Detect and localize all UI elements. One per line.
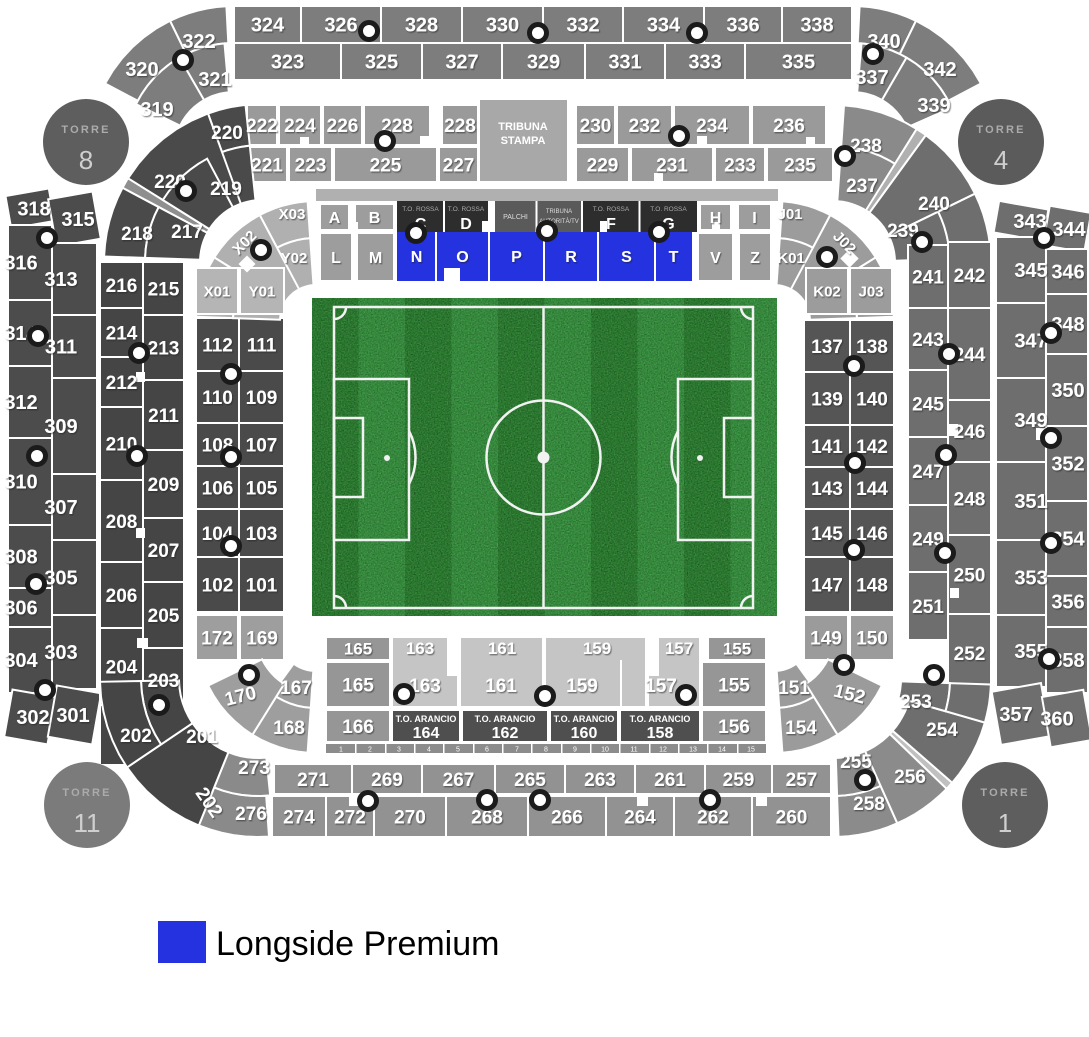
svg-text:265: 265 bbox=[514, 770, 546, 791]
svg-text:248: 248 bbox=[954, 489, 986, 510]
svg-text:155: 155 bbox=[718, 675, 750, 696]
svg-text:231: 231 bbox=[656, 155, 688, 176]
svg-text:162: 162 bbox=[492, 725, 519, 742]
svg-text:211: 211 bbox=[148, 406, 179, 427]
svg-text:7: 7 bbox=[515, 747, 519, 754]
svg-text:T: T bbox=[669, 249, 679, 266]
svg-text:315: 315 bbox=[61, 209, 94, 231]
svg-text:137: 137 bbox=[811, 337, 843, 358]
svg-text:259: 259 bbox=[723, 770, 755, 791]
svg-text:344: 344 bbox=[1052, 219, 1086, 241]
svg-text:256: 256 bbox=[894, 767, 926, 788]
svg-text:156: 156 bbox=[718, 717, 750, 738]
svg-text:TORRE: TORRE bbox=[980, 787, 1029, 799]
svg-text:360: 360 bbox=[1040, 709, 1073, 731]
svg-text:237: 237 bbox=[846, 176, 878, 197]
svg-text:Y01: Y01 bbox=[249, 283, 276, 300]
svg-text:318: 318 bbox=[17, 199, 50, 221]
svg-text:159: 159 bbox=[566, 676, 598, 697]
svg-text:T.O. ARANCIO: T.O. ARANCIO bbox=[396, 714, 457, 724]
svg-text:334: 334 bbox=[647, 15, 681, 37]
svg-text:102: 102 bbox=[202, 575, 234, 596]
svg-text:206: 206 bbox=[106, 586, 138, 607]
svg-text:338: 338 bbox=[800, 15, 833, 37]
svg-text:234: 234 bbox=[696, 116, 728, 137]
svg-text:T.O. ROSSA: T.O. ROSSA bbox=[402, 206, 439, 213]
svg-text:167: 167 bbox=[280, 678, 312, 699]
svg-text:228: 228 bbox=[444, 116, 476, 137]
svg-text:267: 267 bbox=[443, 770, 475, 791]
svg-text:260: 260 bbox=[776, 807, 808, 828]
svg-text:112: 112 bbox=[202, 335, 233, 356]
svg-text:263: 263 bbox=[584, 770, 616, 791]
svg-text:272: 272 bbox=[334, 807, 366, 828]
svg-text:204: 204 bbox=[106, 657, 138, 678]
svg-text:169: 169 bbox=[246, 628, 278, 649]
svg-text:332: 332 bbox=[566, 15, 599, 37]
svg-text:150: 150 bbox=[856, 628, 888, 649]
svg-text:205: 205 bbox=[148, 606, 180, 627]
svg-text:T.O. ARANCIO: T.O. ARANCIO bbox=[630, 714, 691, 724]
svg-text:K02: K02 bbox=[813, 283, 841, 300]
svg-text:219: 219 bbox=[210, 179, 242, 200]
svg-text:105: 105 bbox=[246, 478, 278, 499]
svg-text:319: 319 bbox=[140, 99, 173, 121]
svg-text:15: 15 bbox=[747, 747, 755, 754]
svg-text:1: 1 bbox=[339, 747, 343, 754]
svg-text:352: 352 bbox=[1051, 454, 1084, 476]
svg-text:145: 145 bbox=[811, 524, 843, 545]
svg-text:4: 4 bbox=[427, 747, 431, 754]
svg-text:I: I bbox=[752, 210, 756, 227]
svg-text:X01: X01 bbox=[204, 283, 231, 300]
svg-text:J03: J03 bbox=[858, 283, 883, 300]
svg-text:M: M bbox=[369, 250, 382, 267]
svg-text:335: 335 bbox=[782, 52, 815, 74]
svg-text:1: 1 bbox=[998, 808, 1012, 838]
svg-text:166: 166 bbox=[342, 717, 374, 738]
svg-text:T.O. ROSSA: T.O. ROSSA bbox=[593, 206, 630, 213]
svg-text:T.O. ROSSA: T.O. ROSSA bbox=[448, 206, 485, 213]
svg-text:221: 221 bbox=[251, 155, 283, 176]
svg-text:251: 251 bbox=[912, 597, 944, 618]
svg-text:101: 101 bbox=[246, 575, 278, 596]
svg-text:P: P bbox=[511, 249, 522, 266]
svg-text:165: 165 bbox=[344, 640, 372, 659]
svg-text:S: S bbox=[621, 249, 632, 266]
svg-text:TRIBUNA: TRIBUNA bbox=[546, 209, 572, 215]
svg-text:161: 161 bbox=[488, 639, 516, 658]
svg-text:313: 313 bbox=[44, 269, 77, 291]
svg-text:230: 230 bbox=[580, 116, 612, 137]
svg-text:276: 276 bbox=[235, 804, 267, 825]
svg-text:353: 353 bbox=[1014, 568, 1047, 590]
svg-text:333: 333 bbox=[688, 52, 721, 74]
svg-text:107: 107 bbox=[246, 435, 278, 456]
svg-text:6: 6 bbox=[485, 747, 489, 754]
svg-text:324: 324 bbox=[251, 15, 285, 37]
svg-text:154: 154 bbox=[785, 718, 817, 739]
svg-text:254: 254 bbox=[926, 720, 958, 741]
svg-text:203: 203 bbox=[148, 671, 180, 692]
svg-text:327: 327 bbox=[445, 52, 478, 74]
svg-text:148: 148 bbox=[856, 575, 888, 596]
svg-text:209: 209 bbox=[148, 475, 180, 496]
svg-text:K01: K01 bbox=[777, 250, 805, 267]
svg-text:T.O. ARANCIO: T.O. ARANCIO bbox=[554, 714, 615, 724]
svg-text:337: 337 bbox=[855, 67, 888, 89]
svg-text:303: 303 bbox=[44, 642, 77, 664]
svg-text:216: 216 bbox=[106, 276, 138, 297]
svg-text:342: 342 bbox=[923, 59, 956, 81]
svg-text:10: 10 bbox=[601, 747, 609, 754]
svg-text:201: 201 bbox=[186, 727, 218, 748]
svg-text:250: 250 bbox=[954, 565, 986, 586]
svg-text:316: 316 bbox=[4, 253, 37, 275]
svg-text:144: 144 bbox=[856, 479, 888, 500]
svg-text:322: 322 bbox=[182, 31, 215, 53]
svg-text:273: 273 bbox=[238, 758, 270, 779]
svg-text:111: 111 bbox=[247, 335, 277, 356]
svg-text:2: 2 bbox=[368, 747, 372, 754]
svg-text:270: 270 bbox=[394, 807, 426, 828]
svg-text:149: 149 bbox=[810, 628, 842, 649]
svg-text:245: 245 bbox=[912, 394, 944, 415]
svg-text:261: 261 bbox=[654, 770, 686, 791]
svg-text:110: 110 bbox=[202, 388, 233, 409]
svg-text:H: H bbox=[710, 210, 722, 227]
svg-text:223: 223 bbox=[295, 155, 327, 176]
svg-text:O: O bbox=[456, 249, 468, 266]
svg-text:222: 222 bbox=[246, 116, 278, 137]
svg-text:235: 235 bbox=[784, 155, 816, 176]
svg-text:14: 14 bbox=[718, 747, 726, 754]
svg-text:301: 301 bbox=[56, 705, 89, 727]
svg-text:252: 252 bbox=[954, 644, 986, 665]
svg-text:320: 320 bbox=[125, 59, 158, 81]
svg-text:243: 243 bbox=[912, 330, 944, 351]
svg-text:356: 356 bbox=[1051, 592, 1084, 614]
svg-text:305: 305 bbox=[44, 568, 77, 590]
svg-text:8: 8 bbox=[544, 747, 548, 754]
svg-text:274: 274 bbox=[283, 807, 315, 828]
svg-text:A: A bbox=[329, 210, 341, 227]
svg-text:155: 155 bbox=[723, 640, 751, 659]
svg-text:227: 227 bbox=[443, 155, 475, 176]
svg-text:233: 233 bbox=[724, 155, 756, 176]
svg-text:161: 161 bbox=[485, 676, 517, 697]
svg-text:F: F bbox=[606, 216, 616, 233]
svg-text:345: 345 bbox=[1014, 260, 1047, 282]
svg-text:165: 165 bbox=[342, 675, 374, 696]
svg-text:220: 220 bbox=[211, 123, 243, 144]
svg-text:307: 307 bbox=[44, 497, 77, 519]
svg-text:V: V bbox=[710, 250, 721, 267]
svg-text:330: 330 bbox=[486, 15, 519, 37]
svg-text:168: 168 bbox=[273, 718, 305, 739]
svg-text:246: 246 bbox=[954, 422, 986, 443]
svg-text:PALCHI: PALCHI bbox=[503, 214, 528, 221]
svg-text:103: 103 bbox=[246, 524, 278, 545]
svg-text:269: 269 bbox=[371, 770, 403, 791]
svg-text:253: 253 bbox=[900, 692, 932, 713]
svg-text:349: 349 bbox=[1014, 410, 1047, 432]
svg-text:357: 357 bbox=[999, 704, 1032, 726]
svg-text:321: 321 bbox=[198, 69, 231, 91]
svg-text:308: 308 bbox=[4, 547, 37, 569]
svg-text:163: 163 bbox=[406, 639, 434, 658]
svg-text:213: 213 bbox=[148, 338, 180, 359]
svg-text:202: 202 bbox=[120, 726, 152, 747]
svg-text:266: 266 bbox=[551, 807, 583, 828]
svg-text:157: 157 bbox=[665, 639, 693, 658]
svg-text:L: L bbox=[331, 250, 341, 267]
svg-text:J01: J01 bbox=[777, 206, 802, 223]
svg-text:302: 302 bbox=[16, 707, 49, 729]
svg-text:224: 224 bbox=[284, 116, 316, 137]
svg-text:164: 164 bbox=[413, 725, 440, 742]
svg-text:9: 9 bbox=[573, 747, 577, 754]
svg-text:T.O. ARANCIO: T.O. ARANCIO bbox=[475, 714, 536, 724]
svg-text:257: 257 bbox=[786, 770, 818, 791]
svg-text:138: 138 bbox=[856, 337, 888, 358]
svg-text:331: 331 bbox=[608, 52, 641, 74]
svg-text:Z: Z bbox=[750, 250, 760, 267]
svg-text:TRIBUNA: TRIBUNA bbox=[498, 121, 548, 133]
svg-text:11: 11 bbox=[630, 747, 637, 754]
svg-text:306: 306 bbox=[4, 598, 37, 620]
svg-text:141: 141 bbox=[811, 437, 843, 458]
svg-text:STAMPA: STAMPA bbox=[501, 135, 546, 147]
svg-text:139: 139 bbox=[811, 389, 843, 410]
svg-text:241: 241 bbox=[912, 267, 944, 288]
svg-text:5: 5 bbox=[456, 747, 460, 754]
svg-text:339: 339 bbox=[917, 95, 950, 117]
svg-text:310: 310 bbox=[4, 472, 37, 494]
svg-text:157: 157 bbox=[645, 676, 677, 697]
svg-text:TORRE: TORRE bbox=[62, 787, 111, 799]
svg-text:225: 225 bbox=[370, 155, 402, 176]
svg-text:13: 13 bbox=[689, 747, 697, 754]
svg-text:311: 311 bbox=[45, 337, 77, 359]
svg-text:106: 106 bbox=[202, 478, 234, 499]
svg-text:Longside Premium: Longside Premium bbox=[216, 925, 499, 963]
svg-text:X03: X03 bbox=[279, 206, 306, 223]
svg-text:328: 328 bbox=[405, 15, 438, 37]
svg-text:350: 350 bbox=[1051, 380, 1084, 402]
svg-text:229: 229 bbox=[587, 155, 619, 176]
svg-text:151: 151 bbox=[778, 678, 810, 699]
svg-text:TORRE: TORRE bbox=[976, 124, 1025, 136]
svg-text:247: 247 bbox=[912, 462, 944, 483]
svg-text:N: N bbox=[411, 249, 423, 266]
svg-text:217: 217 bbox=[171, 222, 203, 243]
svg-text:325: 325 bbox=[365, 52, 398, 74]
svg-text:242: 242 bbox=[954, 266, 986, 287]
svg-text:3: 3 bbox=[397, 747, 401, 754]
svg-text:304: 304 bbox=[4, 650, 38, 672]
svg-text:Y02: Y02 bbox=[281, 250, 308, 267]
svg-text:140: 140 bbox=[856, 389, 888, 410]
svg-text:323: 323 bbox=[271, 52, 304, 74]
svg-text:236: 236 bbox=[773, 116, 805, 137]
svg-text:271: 271 bbox=[297, 770, 329, 791]
svg-text:R: R bbox=[565, 249, 577, 266]
svg-text:336: 336 bbox=[726, 15, 759, 37]
svg-text:215: 215 bbox=[148, 279, 180, 300]
svg-text:226: 226 bbox=[327, 116, 359, 137]
svg-text:309: 309 bbox=[44, 416, 77, 438]
svg-text:346: 346 bbox=[1051, 262, 1084, 284]
svg-text:T.O. ROSSA: T.O. ROSSA bbox=[650, 206, 687, 213]
svg-text:172: 172 bbox=[201, 628, 233, 649]
svg-text:147: 147 bbox=[811, 575, 843, 596]
svg-text:207: 207 bbox=[148, 541, 180, 562]
svg-text:212: 212 bbox=[106, 373, 138, 394]
svg-text:232: 232 bbox=[629, 116, 661, 137]
svg-text:214: 214 bbox=[106, 323, 138, 344]
svg-text:158: 158 bbox=[647, 725, 674, 742]
svg-text:258: 258 bbox=[853, 794, 885, 815]
svg-text:B: B bbox=[369, 210, 381, 227]
svg-text:11: 11 bbox=[74, 808, 101, 838]
svg-text:312: 312 bbox=[4, 392, 37, 414]
svg-text:240: 240 bbox=[918, 194, 950, 215]
svg-text:351: 351 bbox=[1014, 491, 1047, 513]
svg-text:4: 4 bbox=[994, 145, 1008, 175]
svg-text:329: 329 bbox=[527, 52, 560, 74]
svg-text:326: 326 bbox=[324, 15, 357, 37]
svg-text:264: 264 bbox=[624, 807, 656, 828]
svg-text:D: D bbox=[460, 216, 472, 233]
svg-text:8: 8 bbox=[79, 145, 93, 175]
svg-text:TORRE: TORRE bbox=[61, 124, 110, 136]
svg-text:143: 143 bbox=[811, 479, 843, 500]
svg-text:218: 218 bbox=[121, 224, 153, 245]
svg-text:160: 160 bbox=[571, 725, 598, 742]
svg-text:12: 12 bbox=[659, 747, 667, 754]
svg-text:208: 208 bbox=[106, 512, 138, 533]
svg-text:159: 159 bbox=[583, 639, 611, 658]
svg-text:109: 109 bbox=[246, 388, 278, 409]
